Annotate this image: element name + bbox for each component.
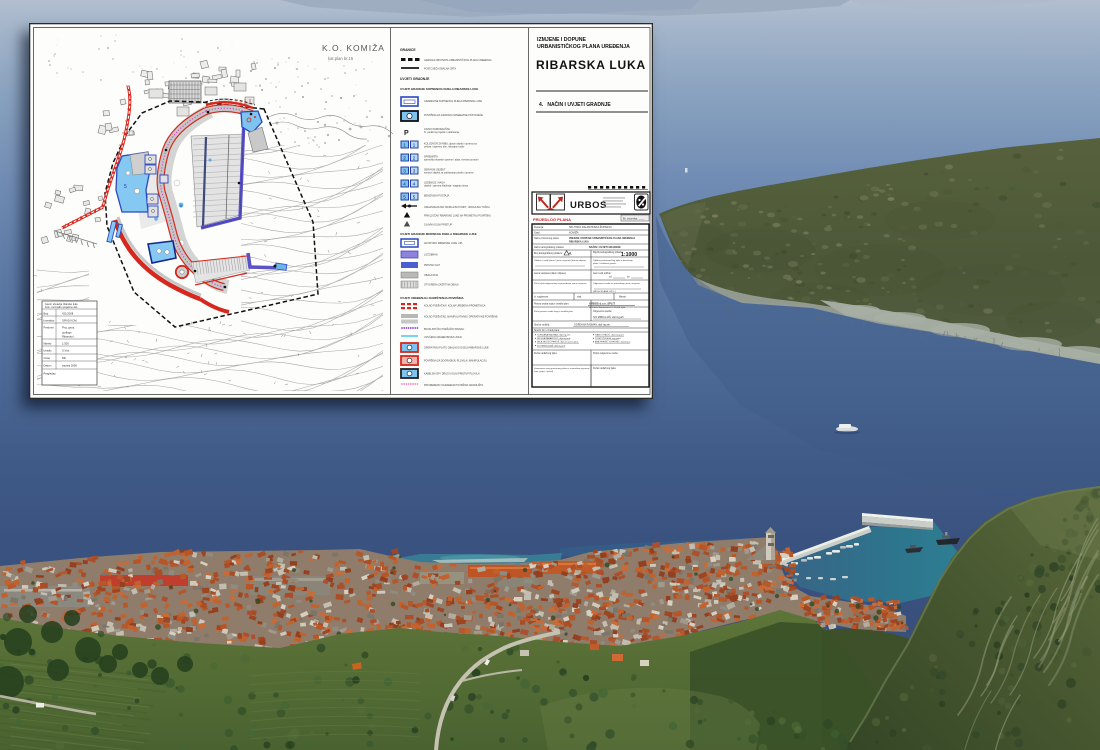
svg-text:POSTOJEĆA OBALNA CRTA: POSTOJEĆA OBALNA CRTA <box>424 68 456 71</box>
svg-text:K.O. KOMIŽA: K.O. KOMIŽA <box>322 43 385 53</box>
svg-text:Javna rasprava (datum objave):: Javna rasprava (datum objave): <box>534 272 567 275</box>
svg-text:Crtao: Crtao <box>44 356 51 360</box>
svg-text:KOLNO PJEŠAČKE, MANIPULATIVNE: KOLNO PJEŠAČKE, MANIPULATIVNE I OPERATIV… <box>424 316 498 319</box>
svg-text:Odluka predstavničkog tijela o: Odluka predstavničkog tijela o donošenju <box>593 259 634 262</box>
svg-text:Stručni voditelj:: Stručni voditelj: <box>534 324 550 327</box>
svg-text:Odgovorna osoba:: Odgovorna osoba: <box>593 310 612 313</box>
svg-text:spremišta ribarske opreme i al: spremišta ribarske opreme i alata, servi… <box>424 159 479 162</box>
svg-text:RIBARSKA LUKA: RIBARSKA LUKA <box>569 241 589 244</box>
svg-text:Istovjetnost ovog prostornog p: Istovjetnost ovog prostornog plana s izv… <box>534 367 590 370</box>
svg-text:ZELJKA BABAROVIĆ, dipl.ing.arh: ZELJKA BABAROVIĆ, dipl.ing.arh. <box>537 337 571 340</box>
svg-text:Odluka o izradi plana / javna: Odluka o izradi plana / javna rasprava (… <box>534 259 587 262</box>
svg-text:BICIKLISTIČKO PJEŠAČKI PRAVAC: BICIKLISTIČKO PJEŠAČKI PRAVAC <box>424 328 465 331</box>
svg-text:TONĆI ŽUVELA, ing.geod.: TONĆI ŽUVELA, ing.geod. <box>595 337 621 340</box>
svg-text:plana / službeno glasilo:: plana / službeno glasilo: <box>593 263 617 265</box>
svg-text:GRANICE: GRANICE <box>400 48 416 52</box>
svg-text:Pečat nadležnog tijela:: Pečat nadležnog tijela: <box>593 367 616 370</box>
svg-text:Investitor: Investitor <box>44 319 55 323</box>
svg-text:421/2008: 421/2008 <box>62 312 74 316</box>
svg-text:URBOS: URBOS <box>570 200 607 211</box>
svg-text:Datum: Datum <box>44 364 53 368</box>
svg-text:(MKGU KLASA: UP/I...): (MKGU KLASA: UP/I...) <box>593 290 616 293</box>
svg-text:4. NAČIN I UVJETI GRADNJE: 4. NAČIN I UVJETI GRADNJE <box>539 101 611 108</box>
svg-text:(ime, potpis i pečat): (ime, potpis i pečat) <box>534 370 553 373</box>
svg-text:IVO MRDULJAŠ, dipl.ing.arh.: IVO MRDULJAŠ, dipl.ing.arh. <box>593 316 625 319</box>
svg-text:Grad:: Grad: <box>534 232 540 235</box>
svg-text:RIBARSKA LUKA: RIBARSKA LUKA <box>536 58 646 72</box>
svg-text:Mjerilo: Mjerilo <box>44 342 52 346</box>
svg-text:GLAVNI KOLNI PRISTUP: GLAVNI KOLNI PRISTUP <box>424 224 452 227</box>
svg-text:Naziv prostornog plana:: Naziv prostornog plana: <box>534 237 560 240</box>
svg-text:1:1000: 1:1000 <box>621 252 637 258</box>
svg-text:Naziv kartografskog prikaza:: Naziv kartografskog prikaza: <box>534 246 564 249</box>
svg-text:Pravna osoba koja je izradila: Pravna osoba koja je izradila plan: <box>534 303 569 306</box>
svg-text:Kom. za izradbu projektne dok.: Kom. za izradbu projektne dok. <box>45 306 78 309</box>
svg-text:Mjesto:: Mjesto: <box>619 296 627 299</box>
svg-text:vlad.: vlad. <box>577 297 582 299</box>
svg-text:POVRŠINA ZA GRADNJU GRAĐEVINE: POVRŠINA ZA GRADNJU GRAĐEVINE POSTOJEĆE <box>424 114 483 117</box>
svg-text:Iz. suglasnost:: Iz. suglasnost: <box>534 296 549 299</box>
svg-text:UVJETI GRADNJE KOPNENOG DIJELA: UVJETI GRADNJE KOPNENOG DIJELA RIBARSKE … <box>400 87 478 91</box>
svg-text:OPERATIVNI PLATO OBALNOG DIJEL: OPERATIVNI PLATO OBALNOG DIJELA RIBARSKE… <box>424 347 489 350</box>
svg-text:KOLNO PJEŠAČKA I KOLNA UREĐENA: KOLNO PJEŠAČKA I KOLNA UREĐENA PROMETNIC… <box>424 305 486 308</box>
svg-text:Pečat pravne osobe koja je izr: Pečat pravne osobe koja je izradila plan… <box>534 310 574 313</box>
svg-text:objekti i oprema hlađenja i va: objekti i oprema hlađenja i vaganja ulov… <box>424 185 469 188</box>
svg-text:Broj: Broj <box>44 312 49 316</box>
svg-text:GRAD KOM.: GRAD KOM. <box>62 319 78 323</box>
svg-text:Br. izvornika: ____: Br. izvornika: ____ <box>623 217 645 221</box>
svg-text:Rih.: Rih. <box>62 356 67 360</box>
svg-text:PRIVREMENO OGRAĐENA POVRŠINA G: PRIVREMENO OGRAĐENA POVRŠINA GRADILIŠTA <box>424 384 483 387</box>
svg-text:P: P <box>404 130 409 137</box>
svg-text:UVJETI UREĐENJA I KORIŠTENJA P: UVJETI UREĐENJA I KORIŠTENJA POVRŠINA <box>400 295 464 300</box>
svg-text:ORGANIZACIJSKI ISKRCAJNI PUNKT: ORGANIZACIJSKI ISKRCAJNI PUNKT, UKRCAJNA… <box>424 206 490 209</box>
svg-text:Ribarska l.: Ribarska l. <box>62 335 75 339</box>
svg-text:GRAĐEVINE KOPNENOG DIJELA RIBA: GRAĐEVINE KOPNENOG DIJELA RIBARSKE LUKE <box>424 100 482 103</box>
svg-text:JELA JELIČIĆ PEROŠ, dipl.oec.p: JELA JELIČIĆ PEROŠ, dipl.oec.prost.plan. <box>537 341 579 344</box>
svg-text:IZMJENE I DOPUNE: IZMJENE I DOPUNE <box>537 37 587 43</box>
svg-text:OTVORENA ZAŠTITNA OBALA: OTVORENA ZAŠTITNA OBALA <box>424 284 459 287</box>
svg-text:Potpis odgovorne osobe:: Potpis odgovorne osobe: <box>593 352 619 355</box>
svg-text:Ul. Dinka Šimunovića 27, 21000: Ul. Dinka Šimunovića 27, 21000 Split <box>589 306 625 309</box>
svg-text:1:500: 1:500 <box>62 342 69 346</box>
svg-text:URBANISTIČKOG PLANA UREĐENJA: URBANISTIČKOG PLANA UREĐENJA <box>537 43 630 50</box>
svg-text:5: 5 <box>124 184 127 190</box>
svg-text:NAČIN I UVJETI GRADNJE: NAČIN I UVJETI GRADNJE <box>589 246 621 249</box>
svg-text:4.: 4. <box>569 252 572 256</box>
svg-text:KABELSKI EP I DRUGI KOLNI PRIS: KABELSKI EP I DRUGI KOLNI PRISTUP PLOVIL… <box>424 373 480 376</box>
svg-text:UVJETI GRADNJE: UVJETI GRADNJE <box>400 77 430 81</box>
svg-text:OBALA RIVA: OBALA RIVA <box>424 274 439 277</box>
svg-text:AKVATORIJ RIBARSKE LUKE -NH-: AKVATORIJ RIBARSKE LUKE -NH- <box>424 242 463 245</box>
svg-text:BENZINSKA POSTAJA: BENZINSKA POSTAJA <box>424 195 450 198</box>
svg-text:podloge: podloge <box>62 331 72 335</box>
svg-text:Proj. geod.: Proj. geod. <box>62 326 75 330</box>
svg-text:br. parkirnog mjesta / natkriv: br. parkirnog mjesta / natkrivanje <box>424 131 460 134</box>
svg-text:Mjerilo kartografskog prikaza:: Mjerilo kartografskog prikaza: <box>593 251 623 254</box>
svg-text:Predmet: Predmet <box>44 326 54 330</box>
svg-text:Broj kartografskog prikaza:: Broj kartografskog prikaza: <box>534 252 563 255</box>
svg-text:POVRŠINA ZA DOGRADNJU PLOVILA: POVRŠINA ZA DOGRADNJU PLOVILA I MANIPULA… <box>424 360 487 363</box>
svg-text:Pečat nadležnog tijela:: Pečat nadležnog tijela: <box>534 352 557 355</box>
svg-text:KOMIŽA: KOMIŽA <box>569 232 579 235</box>
svg-text:UVUČENA GRAĐEVINSKA LINIJA: UVUČENA GRAĐEVINSKA LINIJA <box>424 336 462 339</box>
svg-text:S.Vuk.: S.Vuk. <box>62 349 70 353</box>
svg-text:LUČOBRAN: LUČOBRAN <box>424 254 438 257</box>
svg-text:IVAN KOVAČIĆ, dipl.ing.građ.: IVAN KOVAČIĆ, dipl.ing.građ. <box>595 334 624 337</box>
svg-text:URBOS d.o.o. SPLIT: URBOS d.o.o. SPLIT <box>589 302 615 306</box>
svg-text:GRANICA OBUHVATA URBANISTIČKOG: GRANICA OBUHVATA URBANISTIČKOG PLANA URE… <box>424 59 492 62</box>
svg-text:ANA PERŠIĆ JUTRONIĆ, dipl.ing.: ANA PERŠIĆ JUTRONIĆ, dipl.ing.el. <box>595 341 631 344</box>
svg-text:GORDANA RADMAN, dipl.ing.arh.: GORDANA RADMAN, dipl.ing.arh. <box>574 324 611 327</box>
svg-text:kat.plan br.15: kat.plan br.15 <box>328 56 354 61</box>
svg-text:Izradio: Izradio <box>44 349 53 353</box>
svg-text:IVO MRDULJAŠ, dipl.ing.arh.: IVO MRDULJAŠ, dipl.ing.arh. <box>537 344 566 347</box>
svg-text:Pečat tijela odgovornog za pro: Pečat tijela odgovornog za provođenje ja… <box>534 282 587 285</box>
svg-text:GORDANA RADMAN, dipl.ing.arh.: GORDANA RADMAN, dipl.ing.arh. <box>537 334 571 337</box>
svg-text:SPLITSKO DALMATINSKA ŽUPANIJA: SPLITSKO DALMATINSKA ŽUPANIJA <box>569 226 612 229</box>
svg-text:Stručni tim u izradi plana:: Stručni tim u izradi plana: <box>534 329 560 332</box>
svg-text:Pregledao: Pregledao <box>44 372 57 376</box>
svg-text:Županija:: Županija: <box>534 226 544 229</box>
svg-text:Odgovorna osoba za provođenje: Odgovorna osoba za provođenje javne rasp… <box>593 282 641 285</box>
svg-text:PRIKLJUČAK RIBARSKE LUKE NA PR: PRIKLJUČAK RIBARSKE LUKE NA PROMETNU POV… <box>424 215 491 218</box>
svg-text:PRIJEDLOG PLANA: PRIJEDLOG PLANA <box>533 217 571 222</box>
svg-text:travanj 2008: travanj 2008 <box>62 364 77 368</box>
svg-text:UVJETI GRADNJE MORSKOG DIJELA: UVJETI GRADNJE MORSKOG DIJELA RIBARSKE L… <box>400 232 477 236</box>
svg-text:Javni uvid održan:: Javni uvid održan: <box>593 272 612 275</box>
svg-text:servisni objekti za održavanje: servisni objekti za održavanje plovila i… <box>424 172 474 175</box>
svg-text:PRISTAN GAT: PRISTAN GAT <box>424 264 440 267</box>
svg-text:prihvat i otpremu ribe, iskrca: prihvat i otpremu ribe, iskrcajne točke <box>424 146 465 149</box>
